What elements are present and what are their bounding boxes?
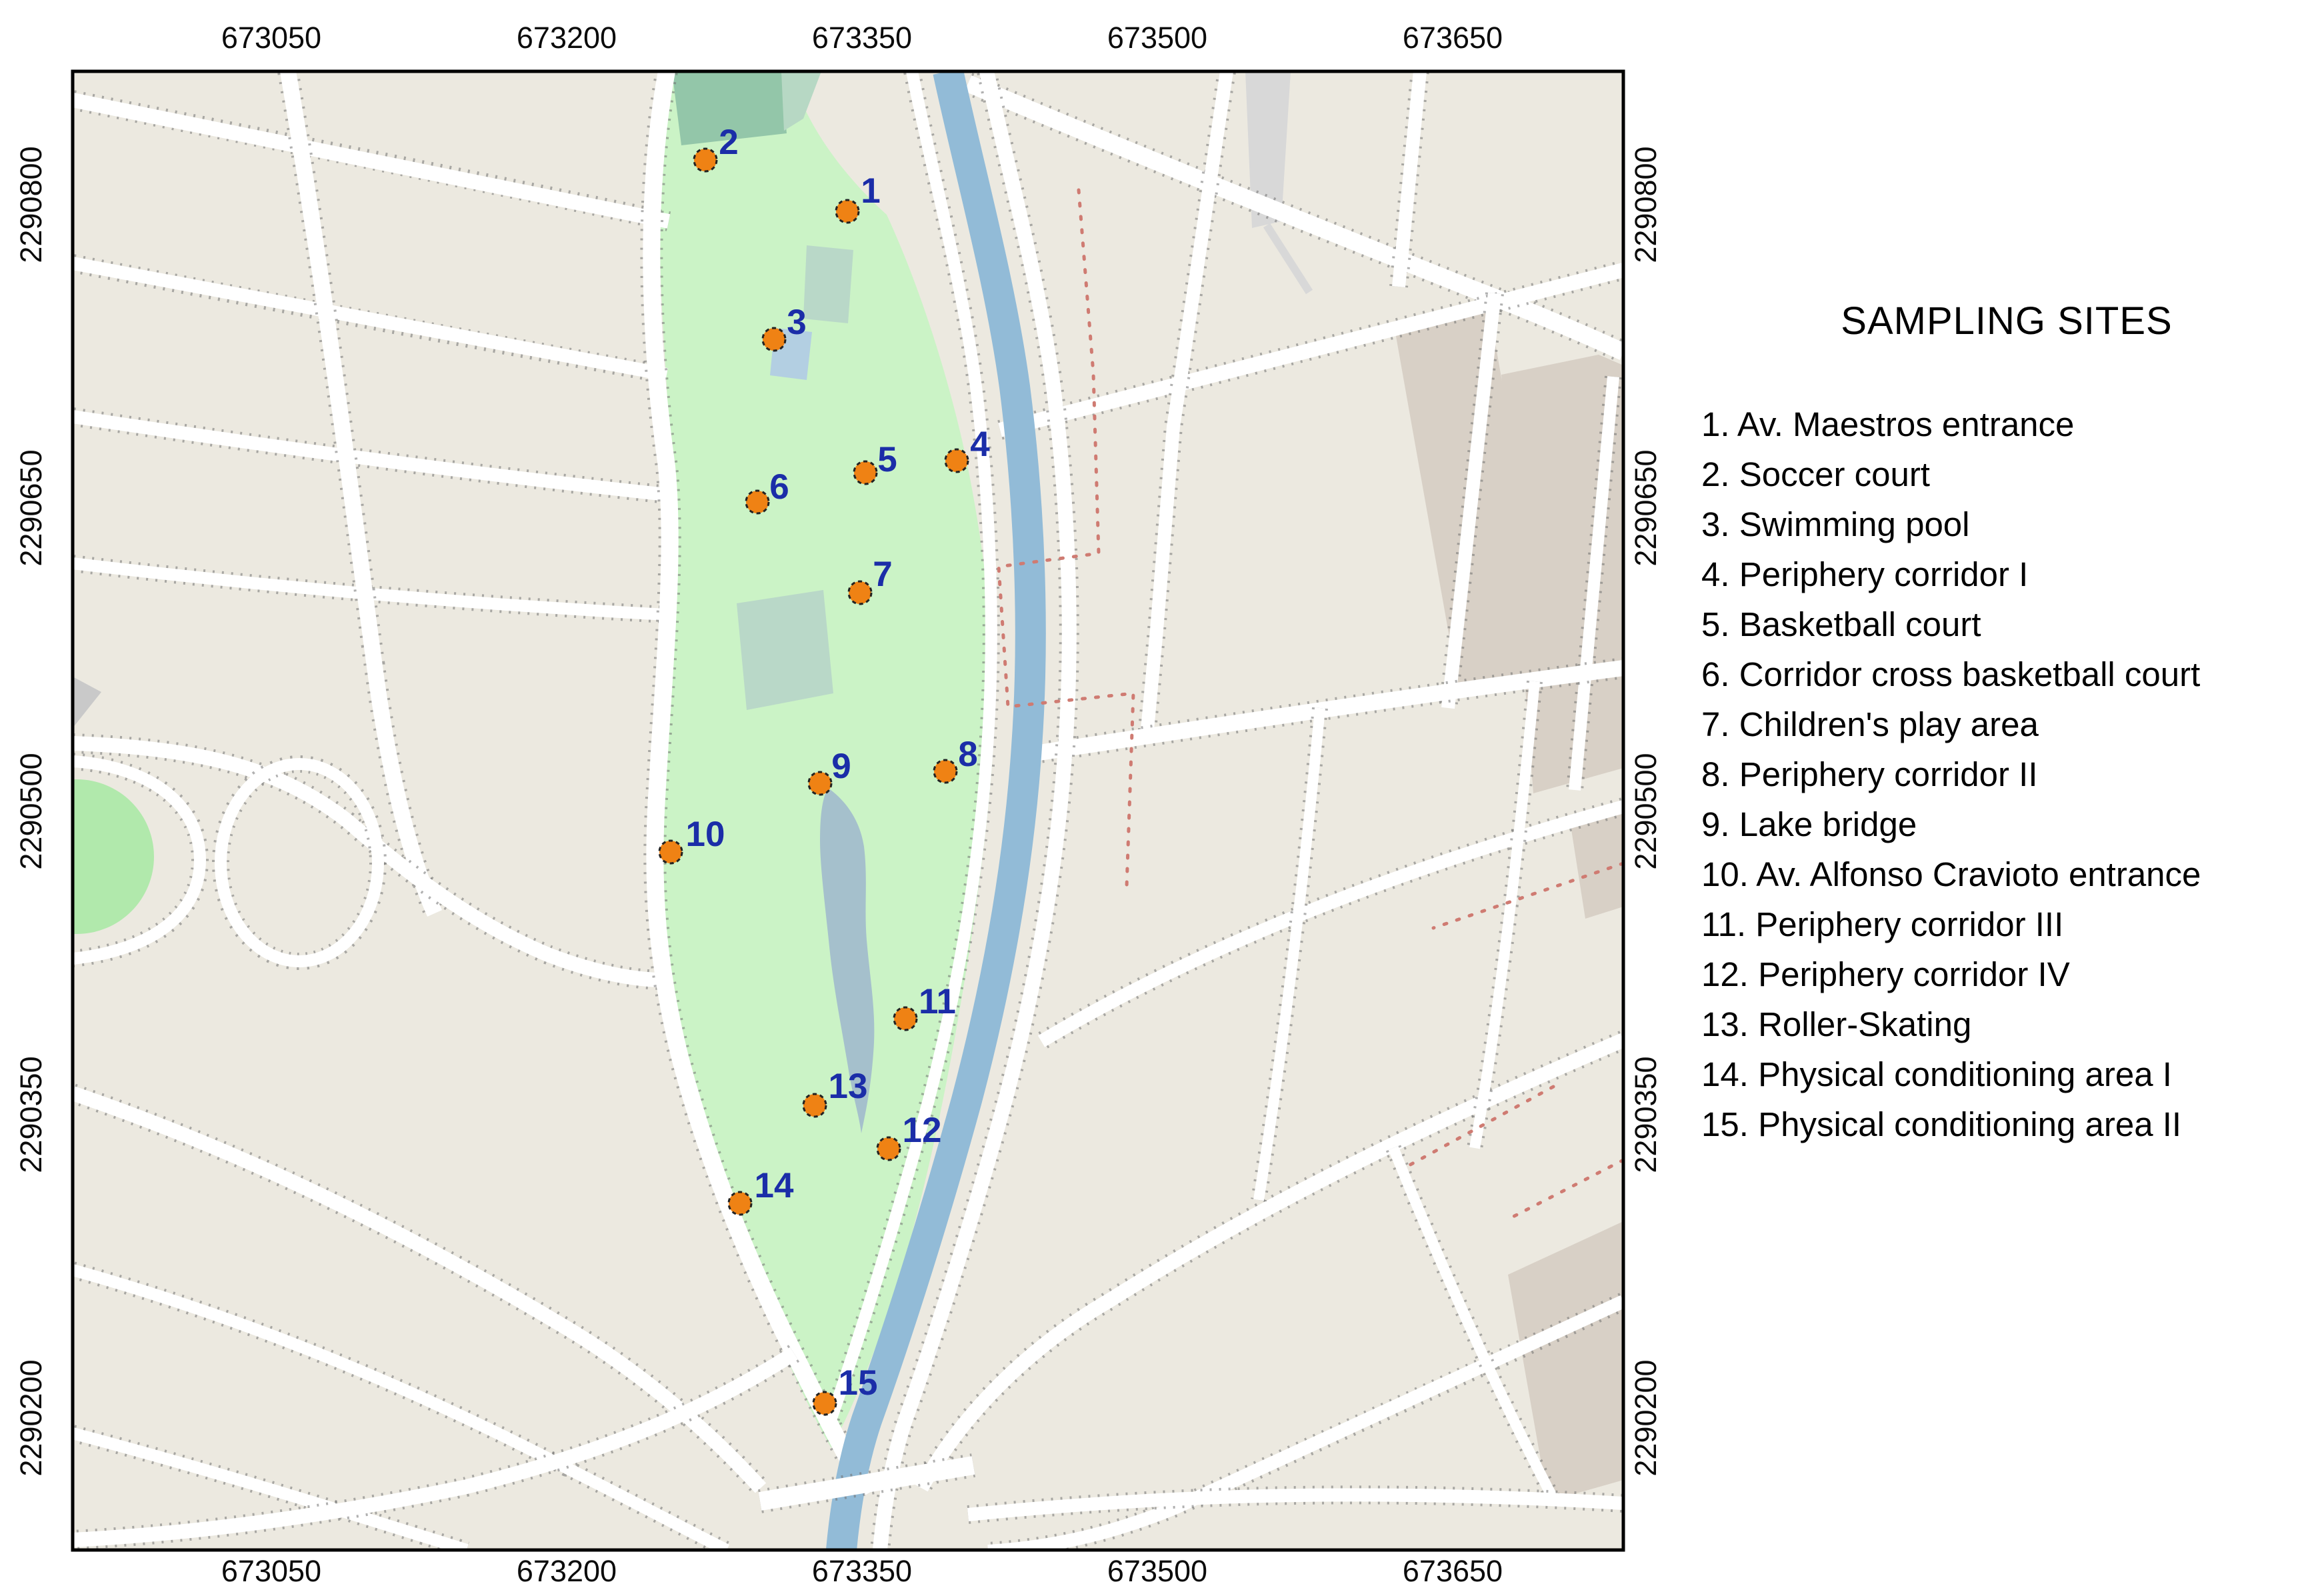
legend-item: 15. Physical conditioning area II [1701, 1099, 2324, 1149]
axis-tick-label-right: 2290350 [1629, 1056, 1663, 1173]
axis-tick-label-top: 673650 [1403, 21, 1503, 55]
sampling-point-dot [945, 449, 968, 472]
play-area-square [737, 590, 833, 710]
legend-item: 12. Periphery corridor IV [1701, 949, 2324, 999]
figure: 1234567891011121314156730506732006733506… [0, 0, 2324, 1596]
sampling-point-dot [836, 200, 859, 223]
sampling-point-number: 11 [919, 982, 956, 1021]
sampling-point-dot [809, 772, 831, 795]
axis-tick-label-top: 673350 [812, 21, 912, 55]
sampling-point-number: 5 [877, 440, 897, 479]
sampling-point-number: 10 [686, 815, 725, 854]
axis-tick-label-top: 673500 [1107, 21, 1207, 55]
sampling-point-dot [729, 1192, 751, 1215]
pool-building [803, 245, 853, 323]
axis-tick-label-left: 2290650 [14, 449, 48, 566]
axis-tick-label-left: 2290350 [14, 1056, 48, 1173]
sampling-point-dot [746, 491, 769, 513]
legend-item: 10. Av. Alfonso Cravioto entrance [1701, 849, 2324, 899]
sampling-point-number: 4 [970, 425, 990, 464]
legend-item: 14. Physical conditioning area I [1701, 1049, 2324, 1099]
sampling-point-number: 13 [829, 1067, 868, 1106]
legend-item: 7. Children's play area [1701, 699, 2324, 749]
legend-item: 4. Periphery corridor I [1701, 549, 2324, 599]
sampling-point-dot [934, 760, 957, 783]
sampling-point-dot [803, 1094, 826, 1117]
sampling-point-dot [694, 149, 717, 171]
sampling-point-number: 14 [755, 1166, 794, 1205]
sampling-point-number: 8 [958, 735, 977, 774]
sampling-point-number: 15 [839, 1363, 878, 1403]
axis-tick-label-left: 2290800 [14, 146, 48, 263]
sampling-point-number: 12 [903, 1111, 942, 1150]
sampling-point-number: 6 [769, 467, 789, 507]
axis-tick-label-left: 2290500 [14, 753, 48, 869]
legend-item: 1. Av. Maestros entrance [1701, 399, 2324, 449]
legend-title: SAMPLING SITES [1680, 299, 2324, 343]
sampling-point-number: 9 [831, 747, 851, 786]
sampling-point-dot [877, 1137, 900, 1160]
sampling-point-number: 2 [719, 123, 738, 162]
sampling-point-dot [763, 328, 785, 351]
sampling-point-number: 3 [787, 303, 806, 342]
sampling-point-dot [849, 581, 871, 604]
sampling-point-dot [854, 461, 877, 484]
legend-item: 5. Basketball court [1701, 599, 2324, 649]
legend-list: 1. Av. Maestros entrance2. Soccer court3… [1680, 399, 2324, 1149]
map-canvas: 123456789101112131415 [0, 71, 1623, 1551]
legend-panel: SAMPLING SITES 1. Av. Maestros entrance2… [1680, 299, 2324, 1149]
legend-item: 6. Corridor cross basketball court [1701, 649, 2324, 699]
axis-tick-label-top: 673200 [517, 21, 617, 55]
sampling-point-number: 1 [861, 171, 880, 211]
legend-item: 9. Lake bridge [1701, 799, 2324, 849]
legend-item: 8. Periphery corridor II [1701, 749, 2324, 799]
legend-item: 13. Roller-Skating [1701, 999, 2324, 1049]
axis-tick-label-right: 2290500 [1629, 753, 1663, 869]
sampling-point-dot [894, 1007, 917, 1030]
axis-tick-label-right: 2290650 [1629, 449, 1663, 566]
sampling-point-number: 7 [873, 555, 892, 594]
axis-tick-label-bottom: 673200 [517, 1554, 617, 1588]
legend-item: 3. Swimming pool [1701, 499, 2324, 549]
axis-tick-label-bottom: 673050 [221, 1554, 321, 1588]
legend-item: 11. Periphery corridor III [1701, 899, 2324, 949]
sampling-point-dot [659, 841, 682, 863]
legend-item: 2. Soccer court [1701, 449, 2324, 499]
axis-tick-label-bottom: 673650 [1403, 1554, 1503, 1588]
axis-tick-label-right: 2290800 [1629, 146, 1663, 263]
axis-tick-label-top: 673050 [221, 21, 321, 55]
sampling-point-dot [813, 1392, 836, 1415]
axis-tick-label-bottom: 673500 [1107, 1554, 1207, 1588]
axis-tick-label-right: 2290200 [1629, 1359, 1663, 1476]
axis-tick-label-left: 2290200 [14, 1359, 48, 1476]
axis-tick-label-bottom: 673350 [812, 1554, 912, 1588]
